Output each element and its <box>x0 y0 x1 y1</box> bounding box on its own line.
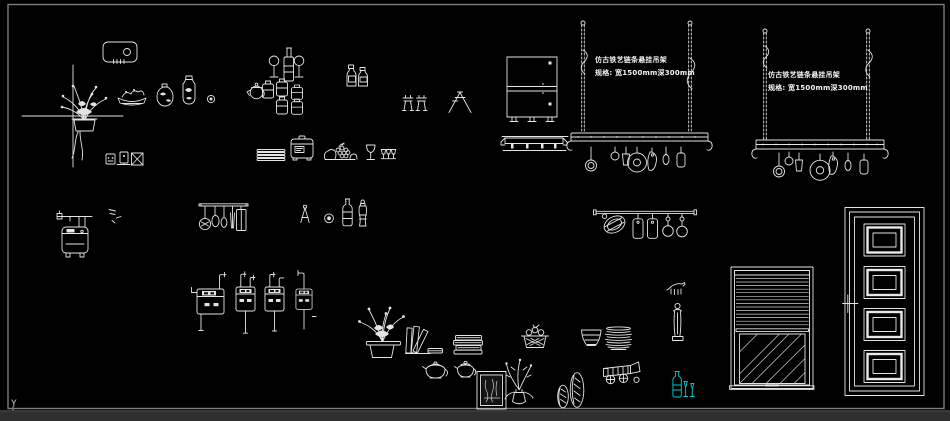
gas-meter-2 <box>236 272 255 333</box>
blind-slats <box>736 279 809 325</box>
ucs-y-label: Y <box>11 399 17 410</box>
pot-rack-left-block[interactable] <box>567 21 712 172</box>
tall-vase-block[interactable] <box>183 76 195 104</box>
teapot-c-block[interactable] <box>455 361 476 377</box>
crosshair-cursor <box>22 65 123 167</box>
panel-door-block[interactable] <box>843 208 925 396</box>
flower-pot-b-block[interactable] <box>358 307 405 358</box>
hook-rail-block[interactable] <box>594 210 697 239</box>
trivet-block[interactable] <box>301 205 309 222</box>
door-panel-1 <box>864 224 905 256</box>
animal-figurine-block[interactable] <box>667 283 685 295</box>
gas-meter-4 <box>296 271 316 330</box>
cad-canvas[interactable]: 仿古铁艺链条悬挂吊架 规格: 宽1500mm深300mm 仿古铁艺链条悬挂吊架 … <box>0 0 950 421</box>
bookend-block[interactable] <box>406 326 443 353</box>
ring-block[interactable] <box>325 214 334 223</box>
oil-bottle-block[interactable] <box>343 199 352 226</box>
towel-rail-block[interactable] <box>501 137 568 151</box>
cyan-bottle-set-block[interactable] <box>673 372 694 397</box>
sauce-bottles-block[interactable] <box>347 65 368 86</box>
rack-label-right-line2[interactable]: 规格: 宽1500mm深300mm <box>768 83 868 92</box>
gas-meters-block[interactable] <box>192 271 317 334</box>
window-blinds-block[interactable] <box>730 267 815 389</box>
fruit-pile-block[interactable] <box>324 143 357 160</box>
base-cabinet-block[interactable] <box>507 57 557 122</box>
oval-vases-block[interactable] <box>558 373 584 408</box>
door-panel-4 <box>864 351 905 383</box>
statue-block[interactable] <box>673 303 684 340</box>
rack-label-left-line2[interactable]: 规格: 宽1500mm深300mm <box>595 68 695 77</box>
book-stack-block[interactable] <box>454 336 483 355</box>
rice-cooker-block[interactable] <box>291 136 313 160</box>
switch-socket-icons[interactable] <box>106 152 143 165</box>
funnel-block[interactable] <box>449 92 471 113</box>
utensil-rail-a-block[interactable] <box>199 204 248 231</box>
jar-set-block[interactable] <box>263 79 303 114</box>
faucet-symbols-block[interactable] <box>403 96 428 111</box>
plant-vase-block[interactable] <box>505 359 533 404</box>
rack-label-left-line1[interactable]: 仿古铁艺链条悬挂吊架 <box>595 55 667 64</box>
small-plate-block[interactable] <box>207 95 214 102</box>
flower-arrangement-block[interactable] <box>61 85 108 160</box>
plate-stack-a-block[interactable] <box>257 150 285 161</box>
rack-label-right-line1[interactable]: 仿古铁艺链条悬挂吊架 <box>768 70 840 79</box>
toy-cart-block[interactable] <box>604 362 641 384</box>
gas-meter-3 <box>265 272 284 331</box>
pot-rack-right-block[interactable] <box>752 29 888 180</box>
picture-frame-block[interactable] <box>477 372 506 410</box>
food-plate-block[interactable] <box>118 89 146 105</box>
door-panel-2 <box>864 267 905 299</box>
range-hood-block[interactable] <box>103 42 137 64</box>
door-panel-3 <box>864 309 905 341</box>
mini-goblets-block[interactable] <box>381 150 395 159</box>
plate-stack-b-block[interactable] <box>606 327 632 350</box>
pepper-grinder-block[interactable] <box>359 200 367 226</box>
bowl-block[interactable] <box>582 330 602 346</box>
gourd-vase-block[interactable] <box>157 84 173 106</box>
glass-hatch <box>740 334 806 384</box>
fruit-basket-block[interactable] <box>522 325 549 348</box>
teapot-a-block[interactable] <box>247 83 264 99</box>
socket-icon <box>106 154 115 164</box>
wine-set-block[interactable] <box>269 48 304 81</box>
small-marks <box>109 210 121 224</box>
switch-icon <box>117 152 130 165</box>
hood-vent-ticks <box>114 60 125 64</box>
teapot-b-block[interactable] <box>423 362 448 378</box>
water-heater-block[interactable] <box>57 211 92 257</box>
drain-icon <box>132 153 144 165</box>
goblet-b-block[interactable] <box>367 145 376 160</box>
status-strip <box>0 411 950 421</box>
gas-meter-1 <box>192 273 227 331</box>
